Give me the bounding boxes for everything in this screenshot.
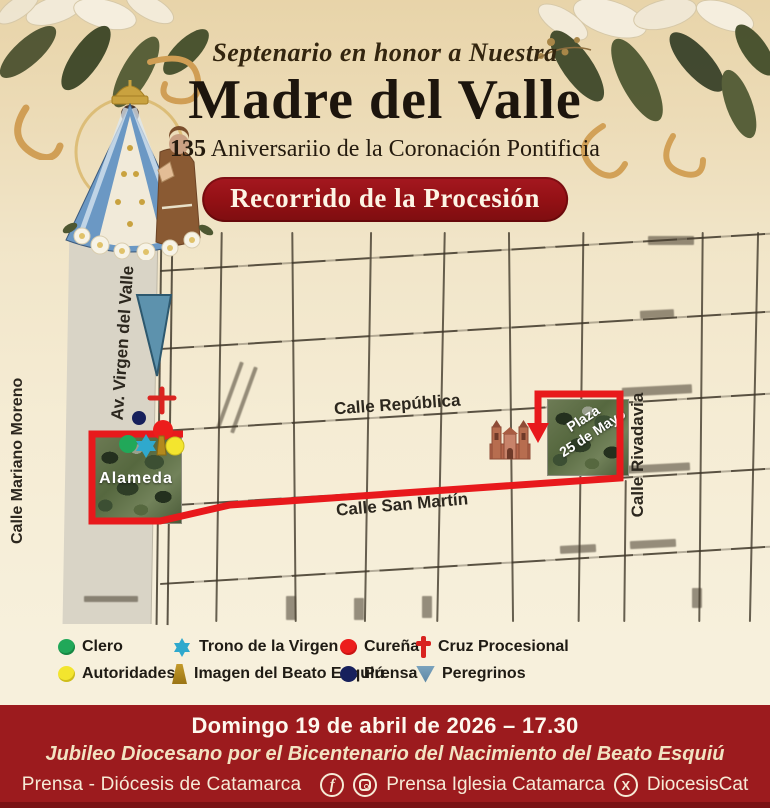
social-handle-x: DiocesisCat xyxy=(647,774,748,796)
social-handle-press: Prensa Iglesia Catamarca xyxy=(386,774,605,796)
legend-item-curena: Cureña xyxy=(340,636,419,658)
legend-item-autoridades: Autoridades xyxy=(58,663,175,685)
poster-title: Madre del Valle xyxy=(0,68,770,132)
clero-marker xyxy=(119,435,137,453)
legend-column-3: Cureña Prensa xyxy=(340,636,419,685)
legend-label: Cruz Procesional xyxy=(438,638,569,656)
peregrinos-legend-icon xyxy=(416,666,435,683)
beato-esquiu-legend-icon xyxy=(172,664,187,684)
cruz-procesional-legend-icon xyxy=(416,636,431,658)
procession-poster: Septenario en honor a Nuestra Madre del … xyxy=(0,0,770,808)
legend-label: Trono de la Virgen xyxy=(199,638,338,656)
prensa-marker xyxy=(132,411,146,425)
legend-label: Peregrinos xyxy=(442,665,526,683)
route-badge: Recorrido de la Procesión xyxy=(202,177,568,222)
legend-column-1: Clero Autoridades xyxy=(58,636,175,685)
press-social-line: Prensa - Diócesis de Catamarca f Prensa … xyxy=(0,773,770,797)
legend-column-4: Cruz Procesional Peregrinos xyxy=(416,636,569,685)
facebook-icon: f xyxy=(320,773,344,797)
cruz-procesional-marker xyxy=(150,389,174,412)
poster-subtitle: Septenario en honor a Nuestra xyxy=(0,38,770,68)
legend-label: Prensa xyxy=(364,665,417,683)
autoridades-marker xyxy=(166,437,184,455)
peregrinos-triangle-marker xyxy=(137,295,171,376)
autoridades-legend-icon xyxy=(58,666,75,682)
trono-virgen-marker xyxy=(136,434,156,458)
beato-esquiu-marker xyxy=(157,436,166,455)
jubilee-line: Jubileo Diocesano por el Bicentenario de… xyxy=(0,743,770,766)
prensa-legend-icon xyxy=(340,666,357,682)
x-letter: X xyxy=(622,779,631,792)
instagram-icon xyxy=(353,773,377,797)
legend-item-peregrinos: Peregrinos xyxy=(416,663,569,685)
procession-route-line xyxy=(92,394,620,521)
instagram-glyph xyxy=(359,779,371,791)
legend-label: Cureña xyxy=(364,638,419,656)
clero-legend-icon xyxy=(58,639,75,655)
anniversary-number: 135 xyxy=(170,136,206,162)
route-overlay xyxy=(0,225,770,627)
anniversary-text: Aniversariio de la Coronación Pontificia xyxy=(206,136,600,162)
footer-banner: Domingo 19 de abril de 2026 – 17.30 Jubi… xyxy=(0,705,770,808)
anniversary-line: 135 Aniversariio de la Coronación Pontif… xyxy=(0,136,770,163)
legend-label: Clero xyxy=(82,638,123,656)
legend-item-prensa: Prensa xyxy=(340,663,419,685)
press-label: Prensa - Diócesis de Catamarca xyxy=(22,774,302,796)
legend-item-clero: Clero xyxy=(58,636,175,658)
route-badge-label: Recorrido de la Procesión xyxy=(230,183,540,213)
event-date-line: Domingo 19 de abril de 2026 – 17.30 xyxy=(0,713,770,739)
legend-label: Autoridades xyxy=(82,665,175,683)
trono-virgen-legend-icon xyxy=(172,637,192,657)
x-twitter-icon: X xyxy=(614,773,638,797)
route-arrowhead xyxy=(527,423,549,443)
curena-legend-icon xyxy=(340,639,357,655)
legend-item-cruz: Cruz Procesional xyxy=(416,636,569,658)
facebook-letter: f xyxy=(330,778,335,793)
procession-map: Calle Mariano Moreno Av. Virgen del Vall… xyxy=(0,225,770,627)
